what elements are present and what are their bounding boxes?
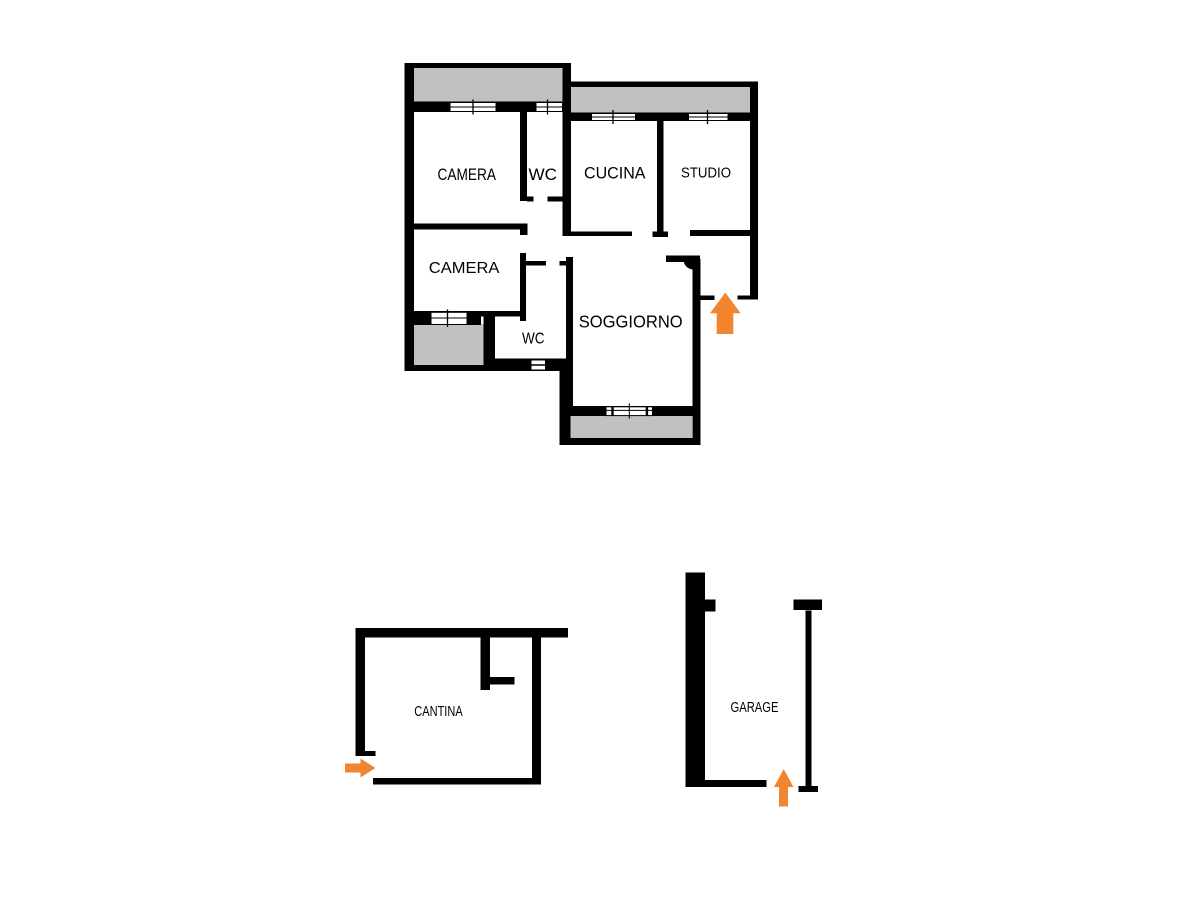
svg-text:WC: WC xyxy=(522,330,545,347)
svg-text:GARAGE: GARAGE xyxy=(731,700,779,716)
svg-text:CANTINA: CANTINA xyxy=(414,704,463,720)
svg-text:WC: WC xyxy=(529,165,558,184)
svg-text:CAMERA: CAMERA xyxy=(429,260,500,277)
svg-text:CUCINA: CUCINA xyxy=(584,164,646,183)
svg-text:SOGGIORNO: SOGGIORNO xyxy=(579,312,683,332)
svg-text:CAMERA: CAMERA xyxy=(438,165,497,184)
svg-text:STUDIO: STUDIO xyxy=(681,166,731,182)
